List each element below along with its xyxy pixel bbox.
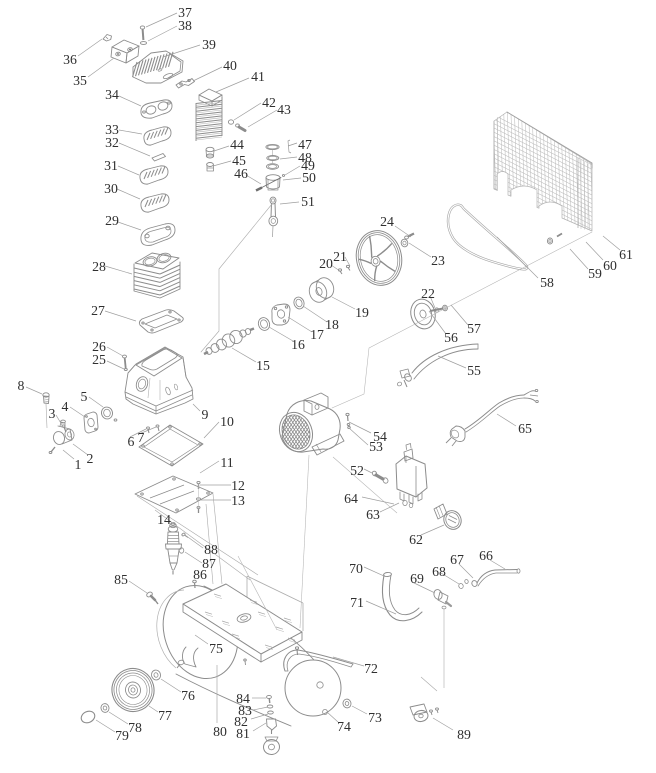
svg-text:40: 40 <box>223 58 237 73</box>
svg-text:62: 62 <box>409 532 423 547</box>
svg-text:85: 85 <box>114 572 128 587</box>
svg-text:56: 56 <box>444 330 458 345</box>
svg-text:16: 16 <box>291 337 305 352</box>
svg-text:35: 35 <box>73 73 87 88</box>
svg-text:66: 66 <box>479 548 493 563</box>
svg-text:26: 26 <box>92 339 106 354</box>
svg-text:8: 8 <box>18 378 25 393</box>
svg-text:79: 79 <box>115 728 129 743</box>
svg-text:68: 68 <box>432 564 446 579</box>
svg-text:61: 61 <box>619 247 633 262</box>
svg-text:63: 63 <box>366 507 380 522</box>
svg-text:1: 1 <box>75 457 82 472</box>
svg-text:17: 17 <box>310 327 324 342</box>
svg-text:87: 87 <box>202 556 216 571</box>
svg-text:34: 34 <box>105 87 119 102</box>
svg-text:69: 69 <box>410 571 424 586</box>
svg-text:28: 28 <box>92 259 106 274</box>
svg-text:71: 71 <box>350 595 364 610</box>
svg-text:36: 36 <box>63 52 77 67</box>
svg-text:9: 9 <box>202 407 209 422</box>
svg-text:78: 78 <box>128 720 142 735</box>
svg-text:38: 38 <box>178 18 192 33</box>
svg-text:10: 10 <box>220 414 234 429</box>
svg-text:50: 50 <box>302 170 316 185</box>
svg-text:75: 75 <box>209 641 223 656</box>
svg-text:59: 59 <box>588 266 602 281</box>
svg-text:64: 64 <box>344 491 358 506</box>
svg-text:12: 12 <box>231 478 245 493</box>
svg-text:46: 46 <box>234 166 248 181</box>
svg-text:72: 72 <box>364 661 378 676</box>
svg-text:27: 27 <box>91 303 105 318</box>
svg-text:84: 84 <box>236 691 250 706</box>
svg-text:7: 7 <box>138 430 145 445</box>
svg-text:58: 58 <box>540 275 554 290</box>
svg-text:44: 44 <box>230 137 244 152</box>
svg-text:11: 11 <box>220 455 233 470</box>
svg-text:77: 77 <box>158 708 172 723</box>
svg-text:74: 74 <box>337 719 351 734</box>
svg-text:3: 3 <box>49 406 56 421</box>
svg-text:51: 51 <box>301 194 315 209</box>
svg-text:60: 60 <box>603 258 617 273</box>
svg-text:6: 6 <box>128 434 135 449</box>
svg-text:42: 42 <box>262 95 276 110</box>
svg-text:30: 30 <box>104 181 118 196</box>
svg-text:19: 19 <box>355 305 369 320</box>
svg-text:70: 70 <box>349 561 363 576</box>
svg-text:13: 13 <box>231 493 245 508</box>
svg-text:41: 41 <box>251 69 265 84</box>
svg-text:4: 4 <box>62 399 69 414</box>
svg-text:55: 55 <box>467 363 481 378</box>
svg-text:5: 5 <box>81 389 88 404</box>
svg-text:39: 39 <box>202 37 216 52</box>
svg-text:33: 33 <box>105 122 119 137</box>
svg-text:15: 15 <box>256 358 270 373</box>
svg-text:67: 67 <box>450 552 464 567</box>
svg-text:76: 76 <box>181 688 195 703</box>
svg-text:29: 29 <box>105 213 119 228</box>
svg-text:43: 43 <box>277 102 291 117</box>
svg-text:32: 32 <box>105 135 119 150</box>
svg-text:18: 18 <box>325 317 339 332</box>
svg-text:25: 25 <box>92 352 106 367</box>
svg-text:31: 31 <box>104 158 118 173</box>
svg-text:88: 88 <box>204 542 218 557</box>
svg-text:57: 57 <box>467 321 481 336</box>
svg-text:65: 65 <box>518 421 532 436</box>
svg-text:14: 14 <box>157 512 171 527</box>
svg-text:2: 2 <box>87 451 94 466</box>
svg-text:73: 73 <box>368 710 382 725</box>
svg-text:52: 52 <box>350 463 364 478</box>
svg-text:89: 89 <box>457 727 471 742</box>
svg-text:24: 24 <box>380 214 394 229</box>
svg-text:54: 54 <box>373 429 387 444</box>
svg-text:80: 80 <box>213 724 227 739</box>
svg-text:23: 23 <box>431 253 445 268</box>
svg-text:21: 21 <box>333 249 347 264</box>
svg-text:22: 22 <box>421 286 435 301</box>
svg-text:20: 20 <box>319 256 333 271</box>
